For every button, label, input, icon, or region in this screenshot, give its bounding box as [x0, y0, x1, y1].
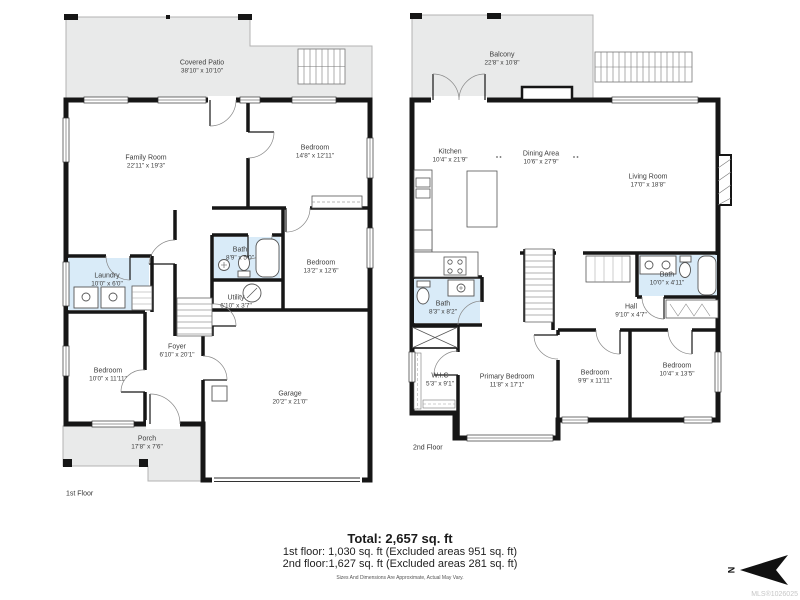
room-label-bedroom-2f-mid: Bedroom9'9" x 11'11" [578, 368, 612, 385]
room-label-family-room: Family Room22'11" x 19'3" [125, 153, 166, 170]
balcony-stairs [595, 52, 692, 82]
disclaimer-text: Sizes And Dimensions Are Approximate, Ac… [0, 575, 800, 581]
toilet-bowl [417, 288, 429, 304]
wall-bump [522, 87, 572, 100]
garage-utility-box [212, 386, 227, 401]
floor2-stairs [525, 249, 553, 322]
floor1-stairs [177, 298, 212, 336]
room-label-utility: Utility6'10" x 3'7" [220, 293, 252, 310]
floor-plan-drawing: N [0, 0, 800, 600]
total-area-text: Total: 2,657 sq. ft [0, 531, 800, 547]
room-label-bedroom-2f-right: Bedroom10'4" x 13'5" [659, 361, 694, 378]
kitchen-sink [416, 178, 430, 187]
bathtub [698, 256, 716, 295]
room-label-primary-bedroom: Primary Bedroom11'8" x 17'1" [480, 372, 534, 389]
room-label-dining-area: Dining Area10'6" x 27'9" [523, 149, 559, 166]
fridge [414, 230, 432, 250]
toilet-tank [680, 256, 691, 262]
floor1-tag: 1st Floor [66, 491, 93, 498]
covered-patio-area [64, 14, 372, 100]
first-floor-area-text: 1st floor: 1,030 sq. ft (Excluded areas … [0, 547, 800, 559]
mls-watermark: MLS®1026025 [751, 591, 798, 598]
toilet-tank [238, 271, 250, 277]
toilet-tank [417, 281, 430, 287]
floor2-tag: 2nd Floor [413, 445, 443, 452]
room-label-living-room: Living Room17'0" x 18'8" [629, 172, 668, 189]
fireplace [718, 155, 731, 205]
room-label-garage: Garage20'2" x 21'0" [272, 389, 307, 406]
room-label-bedroom-bl: Bedroom10'0" x 11'11" [89, 366, 127, 383]
floor1-plan [63, 14, 373, 485]
room-label-bath-1f: Bath8'9" x 5'0" [226, 245, 254, 262]
area-summary: Total: 2,657 sq. ft 1st floor: 1,030 sq.… [0, 531, 800, 581]
room-label-covered-patio: Covered Patio38'10" x 10'10" [180, 58, 224, 75]
room-label-bedroom-top: Bedroom14'8" x 12'11" [296, 143, 334, 160]
kitchen-island [467, 171, 497, 227]
room-label-kitchen: Kitchen10'4" x 21'9" [432, 147, 467, 164]
second-floor-area-text: 2nd floor:1,627 sq. ft (Excluded areas 2… [0, 559, 800, 571]
room-label-hall: Hall9'10" x 4'7" [615, 302, 647, 319]
room-label-bedroom-mid: Bedroom13'2" x 12'6" [303, 258, 338, 275]
stove [444, 257, 466, 275]
room-label-foyer: Foyer6'10" x 20'1" [159, 342, 194, 359]
room-label-bath-2f-right: Bath10'0" x 4'11" [650, 270, 685, 287]
room-label-porch: Porch17'8" x 7'6" [131, 434, 163, 451]
room-label-wic: W.I.C5'3" x 9'1" [426, 371, 454, 388]
floorplan-page: { "floors": [ { "label": "1st Floor", "r… [0, 0, 800, 600]
room-label-bath-2f-left: Bath8'3" x 8'2" [429, 299, 457, 316]
patio-stairs [298, 49, 345, 84]
bathtub [256, 239, 279, 277]
room-label-balcony: Balcony22'8" x 10'8" [484, 50, 519, 67]
room-label-laundry: Laundry10'0" x 6'0" [91, 271, 123, 288]
